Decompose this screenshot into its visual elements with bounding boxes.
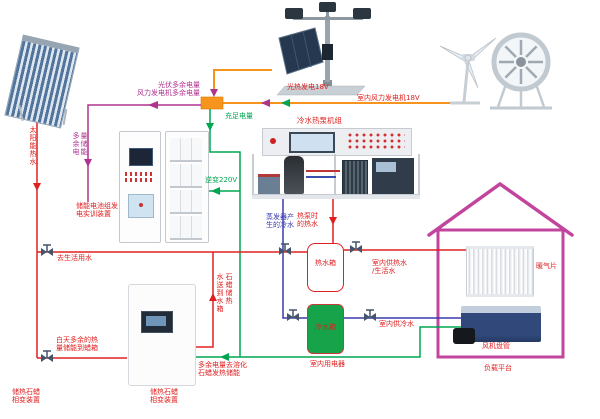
arrow-left-icon [281, 99, 290, 107]
heat-pump-photo [248, 124, 424, 200]
bench-leg [252, 154, 254, 196]
valve-icon [350, 242, 362, 253]
power-junction-node [201, 97, 223, 109]
battery-rack [165, 131, 209, 243]
hot-pipe [306, 170, 340, 172]
hot-tank-label: 热水箱 [308, 259, 343, 267]
sufficient-power-label: 充足电量 [225, 112, 253, 120]
bench-leg [334, 154, 336, 196]
arrow-down-icon [84, 159, 92, 167]
day-excess-heat-label: 白天多余的热 量储能到蜡箱 [56, 336, 98, 352]
fan-coil-photo [461, 306, 541, 342]
system-diagram: 热水箱 冷水箱 光伏多余电量 风力发电机多余电量 光热发电18V 室内风力发电机… [0, 0, 600, 419]
heat-exchanger-coil [342, 160, 368, 196]
bench-base [252, 194, 420, 199]
lamp-icon [353, 8, 371, 19]
excess-storage-label: 多余电量储能 [72, 132, 88, 159]
valve-icon [41, 245, 53, 256]
evaporator-cold-label: 蒸发器产 生的冷水 [266, 213, 294, 229]
paraffin-screen [141, 311, 173, 333]
indicator-dot [139, 203, 143, 207]
arrow-down-icon [206, 123, 214, 131]
arrow-down-icon [210, 89, 218, 97]
melt-paraffin-label: 多余电量去溶化 石蜡发热储能 [198, 361, 247, 377]
battery-cabinet-photo [119, 129, 207, 247]
lamp-icon [285, 8, 303, 19]
cabinet-module [128, 194, 154, 218]
unit-display [376, 162, 396, 172]
sun-tracker-graphic [265, 2, 400, 98]
arrow-left-icon [220, 353, 229, 361]
radiator-photo [466, 246, 534, 297]
cold-tank-label: 冷水箱 [308, 323, 343, 331]
paraffin-cabinet-photo [128, 284, 196, 386]
cabinet-buttons [125, 178, 155, 182]
indoor-hot-water-label: 室内供热水 /生活水 [372, 259, 407, 275]
arrow-left-icon [261, 99, 270, 107]
paraffin-device-label: 储热石蜡 相变装置 [141, 388, 187, 404]
battery-shelf [170, 138, 202, 162]
valve-icon [279, 244, 291, 255]
wind-generation-label: 室内风力发电机18V [357, 94, 420, 102]
excess-power-label: 光伏多余电量 风力发电机多余电量 [118, 81, 200, 97]
wind-turbine-photo [428, 12, 558, 112]
indicator-lights [347, 132, 405, 150]
condensing-unit [372, 158, 414, 194]
battery-shelf [170, 216, 202, 240]
solar-hot-water-label: 太阳能热水 [29, 126, 37, 171]
emergency-button-icon [270, 138, 276, 144]
arrow-left-icon [211, 187, 220, 195]
pipe-sufficient-power [210, 109, 240, 357]
pipe-pv-feed [214, 70, 272, 90]
house-roof [429, 184, 572, 235]
arrow-left-icon [148, 101, 158, 109]
hot-water-tank: 热水箱 [307, 243, 344, 292]
lamp-icon [319, 2, 336, 12]
valve-icon [364, 310, 376, 321]
indoor-cold-water-label: 室内供冷水 [379, 320, 414, 328]
cabinet-screen [129, 148, 153, 166]
inverter-label: 逆变220V [205, 176, 237, 184]
paraffin-device-corner-label: 储热石蜡 相变装置 [12, 388, 40, 404]
paraffin-screen-display [146, 316, 166, 326]
fan-coil-motor [453, 328, 475, 344]
heat-pump-title: 冷水热泵机组 [297, 117, 342, 125]
solar-collector-tubes [4, 35, 79, 129]
battery-shelf [170, 164, 202, 188]
load-platform-label: 负载平台 [484, 364, 512, 372]
pv-panel [279, 28, 323, 74]
arrow-down-icon [329, 217, 337, 225]
paraffin-send-water-label: 水送到水箱 [216, 273, 224, 315]
arrow-down-icon [33, 183, 41, 191]
pv-generation-label: 光热发电18V [287, 83, 329, 91]
heatpump-control-panel [262, 128, 412, 156]
indoor-appliances-label: 室内用电器 [310, 360, 345, 368]
paraffin-stored-heat-label: 石蜡储热 [225, 273, 233, 309]
radiator-label: 暖气片 [536, 262, 557, 270]
valve-icon [287, 310, 299, 321]
heatpump-screen [289, 132, 335, 153]
heatpump-hot-label: 热泵时 的热水 [297, 212, 318, 228]
cold-pipe [306, 176, 336, 178]
control-cabinet [119, 131, 161, 243]
domestic-water-label: 去生活用水 [57, 254, 92, 262]
cabinet-buttons [125, 172, 155, 176]
battery-device-label: 储能电池组发 电实训装置 [76, 202, 118, 218]
wind-source-fan [490, 35, 552, 108]
valve-icon [41, 351, 53, 362]
battery-shelf [170, 190, 202, 214]
fan-coil-label: 风机盘管 [482, 342, 510, 350]
cold-water-tank: 冷水箱 [307, 304, 344, 354]
sun-tracker-photo [265, 2, 400, 98]
solar-collector-photo [6, 31, 86, 123]
bench-leg [418, 154, 420, 196]
wind-rig-graphic [428, 12, 558, 112]
compressor [284, 156, 304, 194]
